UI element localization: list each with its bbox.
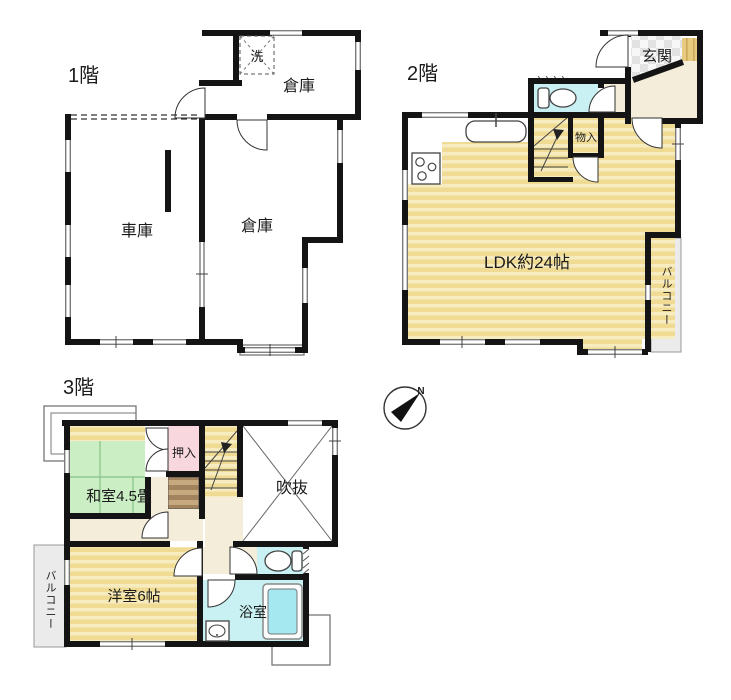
window <box>302 268 308 303</box>
window <box>337 130 343 163</box>
window <box>64 560 70 585</box>
sink-icon <box>206 621 229 641</box>
f3-hall-b <box>205 497 243 547</box>
compass-icon: N <box>384 386 426 429</box>
board-floor-box <box>168 477 199 509</box>
window <box>645 285 651 300</box>
window <box>505 339 540 345</box>
toilet-3f-icon <box>265 551 302 571</box>
bathtub-icon <box>263 584 302 639</box>
yoshitsu-label: 洋室6帖 <box>107 588 160 605</box>
louver-window <box>303 549 309 574</box>
entrance-label: 玄関 <box>642 48 672 65</box>
window <box>402 225 408 290</box>
storage-top-label: 倉庫 <box>283 77 315 95</box>
storage-label: 倉庫 <box>241 217 273 235</box>
window <box>355 42 361 70</box>
sliding-door <box>196 242 208 307</box>
floor-plan-image: 1階 2階 3階 洗 倉庫 車庫 倉庫 玄関 物入 LDK約24帖 バルコニー … <box>0 0 731 700</box>
balcony-2f-label: バルコニー <box>660 266 673 326</box>
window <box>270 30 302 36</box>
floor-label-2f: 2階 <box>407 62 438 85</box>
floor-plan-page: 1階 2階 3階 洗 倉庫 車庫 倉庫 玄関 物入 LDK約24帖 バルコニー … <box>0 0 731 700</box>
bath-label: 浴室 <box>239 604 267 620</box>
garage-pillar <box>165 150 171 212</box>
washitsu-wood-band <box>70 426 145 441</box>
room-ldk <box>408 118 675 339</box>
closet-2f-label: 物入 <box>575 130 597 144</box>
washitsu-label: 和室4.5畳 <box>86 488 152 505</box>
toilet-2f-icon <box>538 88 576 108</box>
window <box>65 225 71 257</box>
door-oshiire-top <box>146 428 168 450</box>
window <box>100 336 133 348</box>
door-1f-upper-storage <box>175 88 205 118</box>
f3-hall-a <box>70 519 203 541</box>
door-entrance <box>596 35 628 67</box>
f3-hall-d <box>168 509 199 519</box>
laundry-label: 洗 <box>250 49 263 64</box>
floor-label-3f: 3階 <box>63 376 94 399</box>
window <box>422 112 468 118</box>
ldk-label: LDK約24帖 <box>484 253 570 272</box>
window <box>65 140 71 172</box>
window <box>153 339 186 345</box>
balcony-3f-label: バルコニー <box>44 570 57 630</box>
door-oshiire-bottom <box>146 449 168 471</box>
floor-label-1f: 1階 <box>68 64 99 87</box>
atrium-label: 吹抜 <box>276 479 308 497</box>
oshiire-label: 押入 <box>172 446 196 460</box>
stove-icon <box>412 153 440 184</box>
window <box>65 285 71 317</box>
compass-north-label: N <box>417 386 424 397</box>
garage-label: 車庫 <box>121 222 153 240</box>
window <box>64 450 70 473</box>
door-1f-storage <box>237 120 267 150</box>
window <box>402 170 408 200</box>
window <box>288 420 322 426</box>
